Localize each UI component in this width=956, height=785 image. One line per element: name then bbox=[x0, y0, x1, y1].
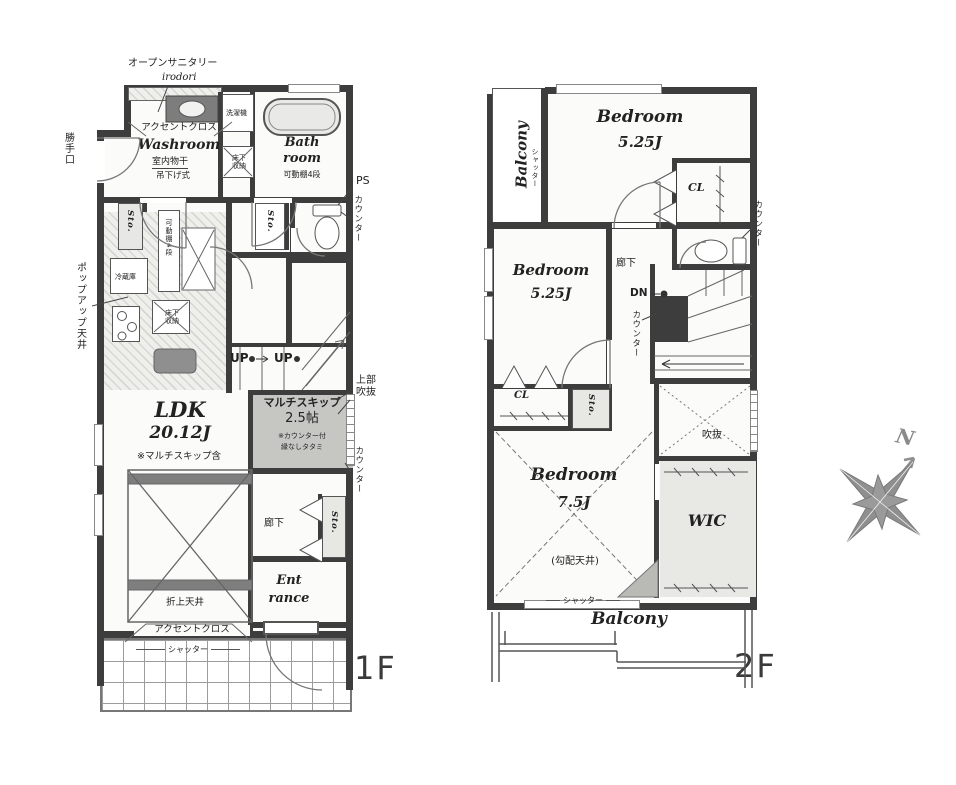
storage-label: Sto. bbox=[328, 511, 338, 534]
entrance-label-1: Ent bbox=[258, 574, 320, 589]
shutter-label-2f-top: シャッター bbox=[531, 148, 539, 188]
wall-notch bbox=[89, 77, 129, 133]
wic-label: WIC bbox=[662, 512, 752, 530]
floor-storage-label: 床下収納 bbox=[231, 154, 247, 170]
open-sanitary-sub-label: irodori bbox=[162, 72, 196, 84]
bath-label-2: room bbox=[262, 152, 342, 167]
wall bbox=[286, 258, 292, 346]
pantry-shelf-label: 可動棚4段 bbox=[165, 219, 173, 256]
wall bbox=[252, 622, 266, 628]
multi-skip-label-2: 2.5帖 bbox=[256, 412, 348, 427]
folded-ceiling-label: 折上天井 bbox=[164, 598, 206, 609]
bath-label-1: Bath bbox=[262, 136, 342, 151]
corridor-label-1f: 廊下 bbox=[264, 518, 284, 530]
wall bbox=[541, 88, 548, 229]
bedroom1-label: Bedroom bbox=[560, 108, 720, 128]
corridor-label-2f: 廊下 bbox=[616, 258, 636, 270]
upper-void-label-2: 吹抜 bbox=[356, 387, 376, 399]
counter-label-1f-b: カウンター bbox=[353, 446, 363, 494]
bedroom2-size-label: 5.25J bbox=[498, 286, 604, 302]
open-sanitary-niche bbox=[128, 87, 222, 101]
wall bbox=[248, 468, 353, 474]
wall bbox=[346, 638, 353, 690]
back-door-gap bbox=[96, 141, 105, 183]
balcony-bottom-label: Balcony bbox=[582, 610, 676, 630]
wall bbox=[290, 258, 353, 263]
wall bbox=[672, 158, 752, 163]
entrance-label-2: rance bbox=[256, 592, 322, 607]
storage-label: Sto. bbox=[124, 210, 134, 233]
wall bbox=[672, 264, 757, 270]
floor-storage-box-1: 床下収納 bbox=[222, 146, 254, 178]
floor-storage-label: 床下収納 bbox=[164, 309, 180, 325]
bath-shelf-label: 可動棚4段 bbox=[258, 170, 346, 179]
storage-label: Sto. bbox=[264, 210, 274, 233]
up-label-1: UP bbox=[230, 352, 249, 366]
balcony-top-label: Balcony bbox=[513, 105, 530, 205]
pantry-box: 可動棚4段 bbox=[158, 210, 180, 292]
accent-cloth-top-label: アクセントクロス bbox=[126, 123, 232, 134]
window bbox=[94, 424, 103, 466]
window bbox=[484, 248, 493, 292]
shutter-label-2f-bottom: シャッター bbox=[546, 596, 620, 605]
multi-skip-label-1: マルチスキップ bbox=[256, 397, 348, 410]
ldk-label: LDK bbox=[120, 398, 240, 422]
compass-rose bbox=[840, 458, 920, 542]
wall bbox=[97, 638, 104, 686]
door-gap bbox=[612, 223, 656, 228]
counter-label-1f-a: カウンター bbox=[352, 195, 362, 243]
window bbox=[484, 296, 493, 340]
door-gap bbox=[607, 340, 612, 388]
hanging-type-label: 吊下げ式 bbox=[156, 172, 190, 182]
washing-machine-label: 洗濯機 bbox=[226, 109, 247, 117]
door-gap bbox=[655, 464, 659, 500]
counter-label-2f-b: カウンター bbox=[630, 310, 640, 358]
storage-3: Sto. bbox=[322, 496, 346, 558]
up-label-2: UP bbox=[274, 352, 293, 366]
wall bbox=[654, 378, 757, 384]
bedroom2-label: Bedroom bbox=[498, 262, 604, 279]
multi-skip-note-1: ※カウンター付 bbox=[258, 432, 346, 440]
bedroom3-label: Bedroom bbox=[504, 466, 644, 486]
wall bbox=[650, 264, 655, 384]
dn-label: DN bbox=[630, 287, 648, 299]
bedroom3-note-label: (勾配天井) bbox=[508, 556, 642, 568]
void-label: 吹抜 bbox=[700, 430, 724, 442]
popup-ceiling-label: ポップアップ天井 bbox=[74, 262, 86, 350]
wall bbox=[230, 343, 353, 347]
wall bbox=[490, 222, 548, 229]
compass-north-label: N bbox=[894, 424, 917, 450]
floor-plan-canvas: Sto. Sto. 洗濯機 床下収納 冷蔵庫 床下収納 可動棚4段 Sto. オ… bbox=[0, 0, 956, 785]
window bbox=[556, 84, 662, 94]
wall bbox=[316, 622, 353, 628]
ldk-note-label: ※マルチスキップ含 bbox=[114, 452, 244, 463]
closet1-label: CL bbox=[688, 182, 705, 195]
closet2-label: CL bbox=[514, 390, 529, 402]
storage-label: Sto. bbox=[585, 394, 595, 417]
open-sanitary-label: オープンサニタリー bbox=[128, 58, 217, 70]
bedroom3-size-label: 7.5J bbox=[504, 494, 644, 511]
wall bbox=[672, 158, 677, 228]
multi-skip-note-2: 縁なしタタミ bbox=[258, 443, 346, 451]
accent-cloth-bottom-label: アクセントクロス bbox=[134, 625, 250, 636]
wall bbox=[672, 229, 677, 270]
shutter-label-1f: シャッター bbox=[136, 645, 240, 654]
ps-label: PS bbox=[356, 175, 370, 188]
window bbox=[94, 494, 103, 536]
storage-1: Sto. bbox=[118, 203, 143, 250]
storage-4: Sto. bbox=[572, 389, 610, 429]
window bbox=[750, 390, 758, 452]
fridge-box: 冷蔵庫 bbox=[110, 258, 148, 294]
stove-box bbox=[112, 306, 140, 342]
bedroom1-size-label: 5.25J bbox=[560, 134, 720, 151]
indoor-drying-label: 室内物干 bbox=[152, 157, 188, 169]
fridge-label: 冷蔵庫 bbox=[115, 273, 136, 281]
back-door-label: 勝手口 bbox=[62, 132, 74, 165]
floor2-label: 2F bbox=[734, 648, 777, 685]
upper-void-label-1: 上部 bbox=[356, 375, 376, 387]
storage-2: Sto. bbox=[255, 203, 285, 250]
ldk-size-label: 20.12J bbox=[120, 424, 240, 444]
floor-storage-box-2: 床下収納 bbox=[152, 300, 190, 334]
window bbox=[288, 84, 340, 93]
floor1-label: 1F bbox=[354, 650, 397, 687]
washroom-label: Washroom bbox=[132, 137, 226, 153]
counter-label-2f-a: カウンター bbox=[752, 200, 762, 248]
